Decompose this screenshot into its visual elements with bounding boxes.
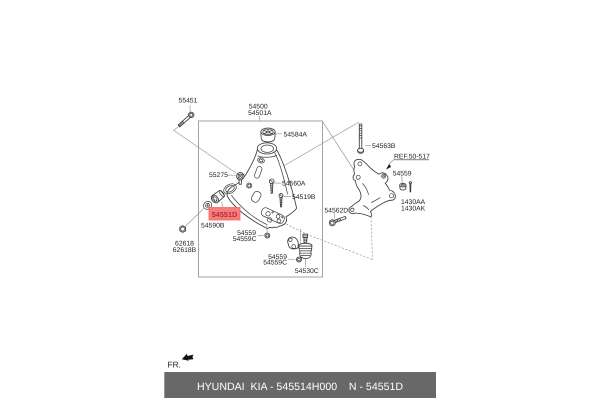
svg-text:54563B: 54563B [372, 143, 396, 150]
svg-text:55451: 55451 [179, 98, 198, 105]
svg-text:54584A: 54584A [284, 131, 308, 138]
svg-text:FR.: FR. [168, 360, 181, 370]
svg-text:54559C: 54559C [263, 260, 287, 267]
svg-text:54530C: 54530C [295, 268, 319, 275]
svg-text:1430AK: 1430AK [401, 206, 426, 213]
svg-text:54560A: 54560A [282, 181, 306, 188]
svg-text:54551D: 54551D [212, 210, 238, 219]
svg-text:54501A: 54501A [248, 110, 272, 117]
svg-text:54519B: 54519B [292, 194, 316, 201]
svg-text:54559: 54559 [393, 170, 412, 177]
svg-text:54562D: 54562D [324, 208, 348, 215]
svg-text:54590B: 54590B [201, 222, 225, 229]
svg-text:62618B: 62618B [173, 247, 197, 254]
svg-text:55275: 55275 [209, 172, 228, 179]
svg-text:REF.50-517: REF.50-517 [394, 154, 430, 161]
svg-text:HYUNDAI KIA - 545514H000 N: HYUNDAI KIA - 545514H000 N - 54551D [197, 381, 403, 393]
svg-text:54559C: 54559C [233, 236, 257, 243]
